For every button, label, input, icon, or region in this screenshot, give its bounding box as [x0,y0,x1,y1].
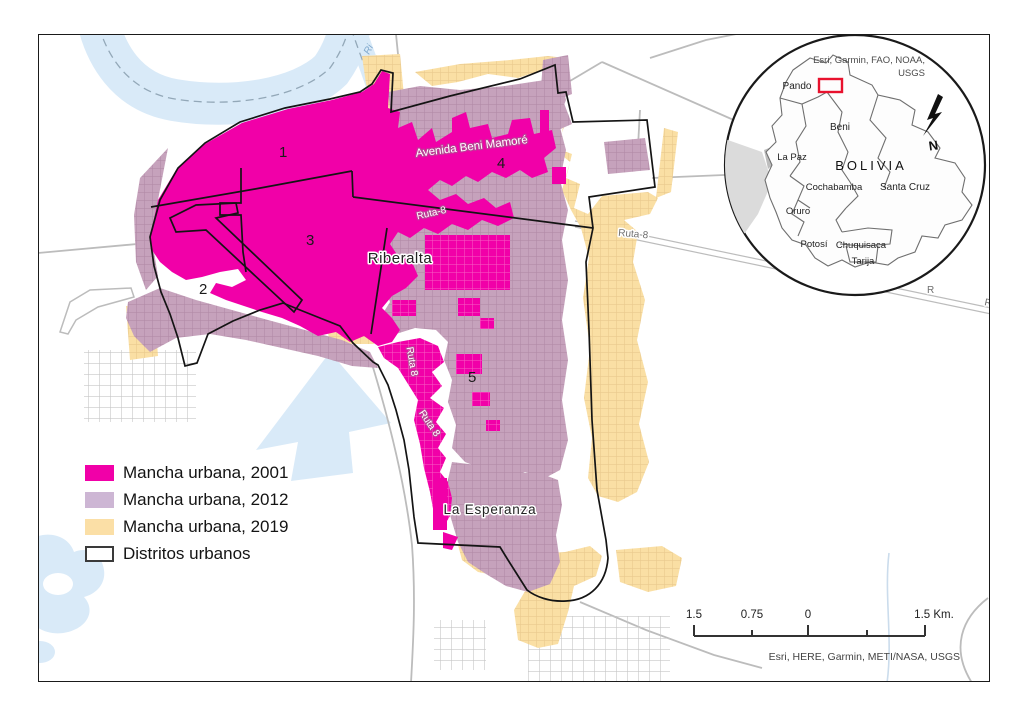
legend-label-2001: Mancha urbana, 2001 [123,463,288,483]
district-4-label: 4 [497,155,505,172]
legend-swatch-2019 [85,519,114,535]
lake-island [43,573,73,595]
urban-2001-patch [540,110,549,134]
inset-dept-potosi: Potosí [801,239,828,250]
city-label: Riberalta [368,250,433,267]
street-grid [434,620,486,670]
legend: Mancha urbana, 2001 Mancha urbana, 2012 … [85,459,288,567]
urban-2001-patch [486,420,500,431]
scalebar-label-0: 1.5 [686,609,702,621]
inset-country-label: BOLIVIA [835,158,907,173]
neighborhood-label: La Esperanza [444,502,537,517]
inset-dept-tarija: Tarija [852,256,875,267]
urban-2001-patch [480,318,494,329]
district-2-label: 2 [199,281,207,298]
street-grid [84,350,196,422]
route-fragment-1: R [927,285,934,296]
inset-dept-santacruz: Santa Cruz [880,182,930,193]
inset-dept-lapaz: La Paz [777,152,807,163]
scalebar-label-1: 0.75 [741,609,763,621]
inset-dept-cochabamba: Cochabamba [806,182,863,193]
legend-swatch-districts [85,546,114,562]
legend-label-districts: Distritos urbanos [123,544,251,564]
urban-2001-grid-patch [425,235,510,290]
legend-label-2019: Mancha urbana, 2019 [123,517,288,537]
district-line [352,171,353,197]
urban-2001-patch [458,298,480,316]
scalebar-label-3: 1.5 Km. [914,609,954,621]
district-3-label: 3 [306,232,314,249]
legend-item-2019: Mancha urbana, 2019 [85,513,288,540]
legend-item-2012: Mancha urbana, 2012 [85,486,288,513]
inset-credits-2: USGS [898,68,925,79]
inset-dept-chuquisaca: Chuquisaca [836,240,887,251]
scalebar-label-2: 0 [805,609,811,621]
inset-map: Esri, Garmin, FAO, NOAA, USGS Pando Beni… [722,35,985,295]
inset-dept-pando: Pando [783,81,812,92]
pond [25,641,55,663]
urban-2001-patch [552,167,566,184]
urban-2012-polygon [604,138,650,174]
district-1-label: 1 [279,144,287,161]
inset-credits-1: Esri, Garmin, FAO, NOAA, [813,55,925,66]
legend-swatch-2001 [85,465,114,481]
legend-label-2012: Mancha urbana, 2012 [123,490,288,510]
district-5-label: 5 [468,369,476,386]
legend-item-districts: Distritos urbanos [85,540,288,567]
urban-2001-patch [472,392,490,406]
map-canvas: 1 2 3 4 5 Riberalta La Esperanza Avenida… [0,0,1024,724]
legend-swatch-2012 [85,492,114,508]
legend-item-2001: Mancha urbana, 2001 [85,459,288,486]
urban-2001-patch [392,300,416,316]
map-credits: Esri, HERE, Garmin, METI/NASA, USGS [769,651,960,663]
inset-dept-beni: Beni [830,122,850,133]
inset-dept-oruro: Oruro [786,206,810,217]
